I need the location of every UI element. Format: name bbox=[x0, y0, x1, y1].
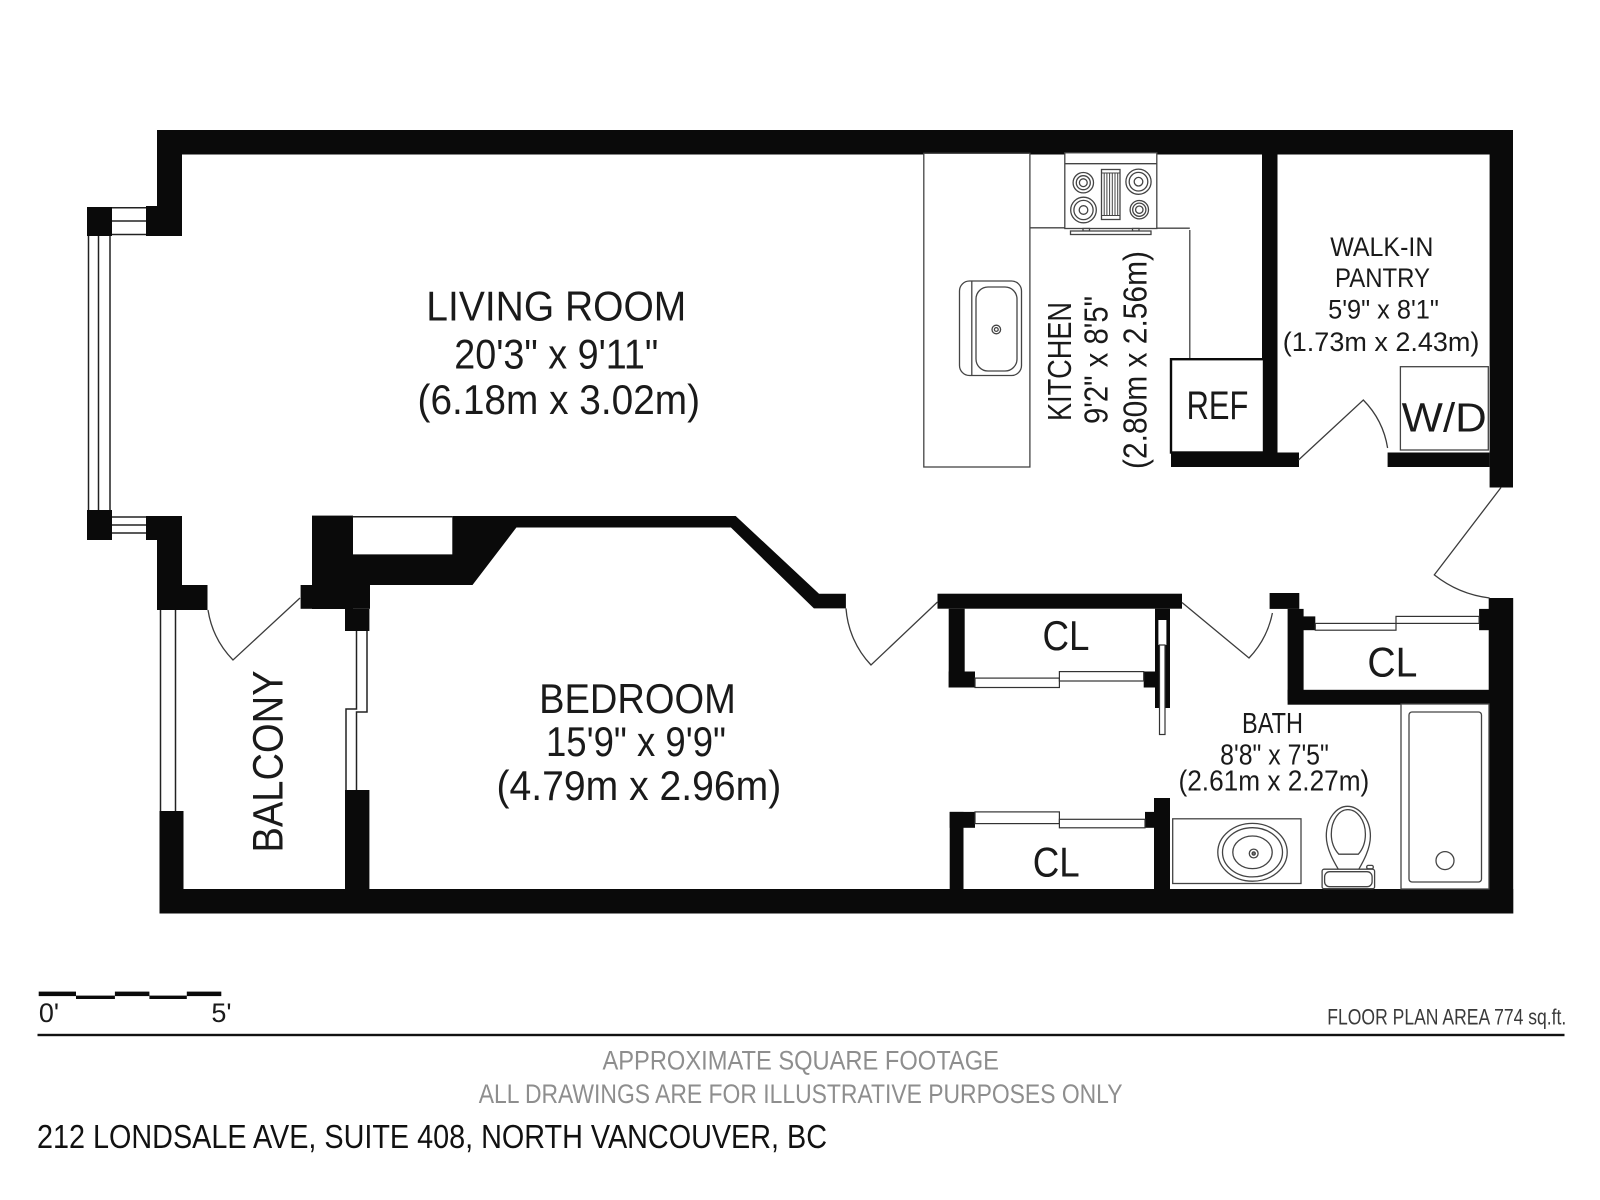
svg-text:212 LONDSALE AVE, SUITE 408, N: 212 LONDSALE AVE, SUITE 408, NORTH VANCO… bbox=[37, 1118, 827, 1155]
svg-text:WALK-IN: WALK-IN bbox=[1330, 232, 1433, 262]
svg-text:20'3" x 9'11": 20'3" x 9'11" bbox=[454, 330, 658, 377]
svg-text:5'9" x 8'1": 5'9" x 8'1" bbox=[1328, 295, 1439, 325]
svg-text:LIVING ROOM: LIVING ROOM bbox=[426, 282, 686, 329]
svg-text:0': 0' bbox=[39, 998, 59, 1028]
svg-text:BATH: BATH bbox=[1242, 708, 1303, 740]
svg-text:(6.18m x 3.02m): (6.18m x 3.02m) bbox=[418, 376, 701, 423]
svg-text:9'2" x 8'5": 9'2" x 8'5" bbox=[1078, 296, 1115, 424]
svg-text:BEDROOM: BEDROOM bbox=[539, 675, 736, 722]
svg-text:(2.80m x 2.56m): (2.80m x 2.56m) bbox=[1117, 251, 1154, 469]
svg-text:W/D: W/D bbox=[1402, 394, 1487, 440]
svg-text:(2.61m x 2.27m): (2.61m x 2.27m) bbox=[1179, 766, 1370, 798]
svg-text:KITCHEN: KITCHEN bbox=[1041, 302, 1078, 421]
svg-text:APPROXIMATE SQUARE FOOTAGE: APPROXIMATE SQUARE FOOTAGE bbox=[602, 1045, 999, 1075]
svg-text:FLOOR PLAN AREA 774 sq.ft.: FLOOR PLAN AREA 774 sq.ft. bbox=[1327, 1005, 1566, 1030]
svg-text:CL: CL bbox=[1033, 838, 1080, 885]
svg-text:ALL DRAWINGS ARE FOR ILLUSTRAT: ALL DRAWINGS ARE FOR ILLUSTRATIVE PURPOS… bbox=[479, 1079, 1123, 1109]
svg-text:CL: CL bbox=[1043, 612, 1090, 659]
svg-text:5': 5' bbox=[211, 998, 231, 1028]
svg-text:CL: CL bbox=[1367, 639, 1417, 686]
svg-text:BALCONY: BALCONY bbox=[245, 671, 293, 853]
svg-text:(4.79m x 2.96m): (4.79m x 2.96m) bbox=[497, 762, 782, 809]
svg-text:PANTRY: PANTRY bbox=[1335, 263, 1430, 293]
svg-text:REF: REF bbox=[1187, 384, 1249, 428]
svg-text:15'9" x 9'9": 15'9" x 9'9" bbox=[546, 718, 726, 765]
svg-text:(1.73m x 2.43m): (1.73m x 2.43m) bbox=[1283, 327, 1480, 357]
